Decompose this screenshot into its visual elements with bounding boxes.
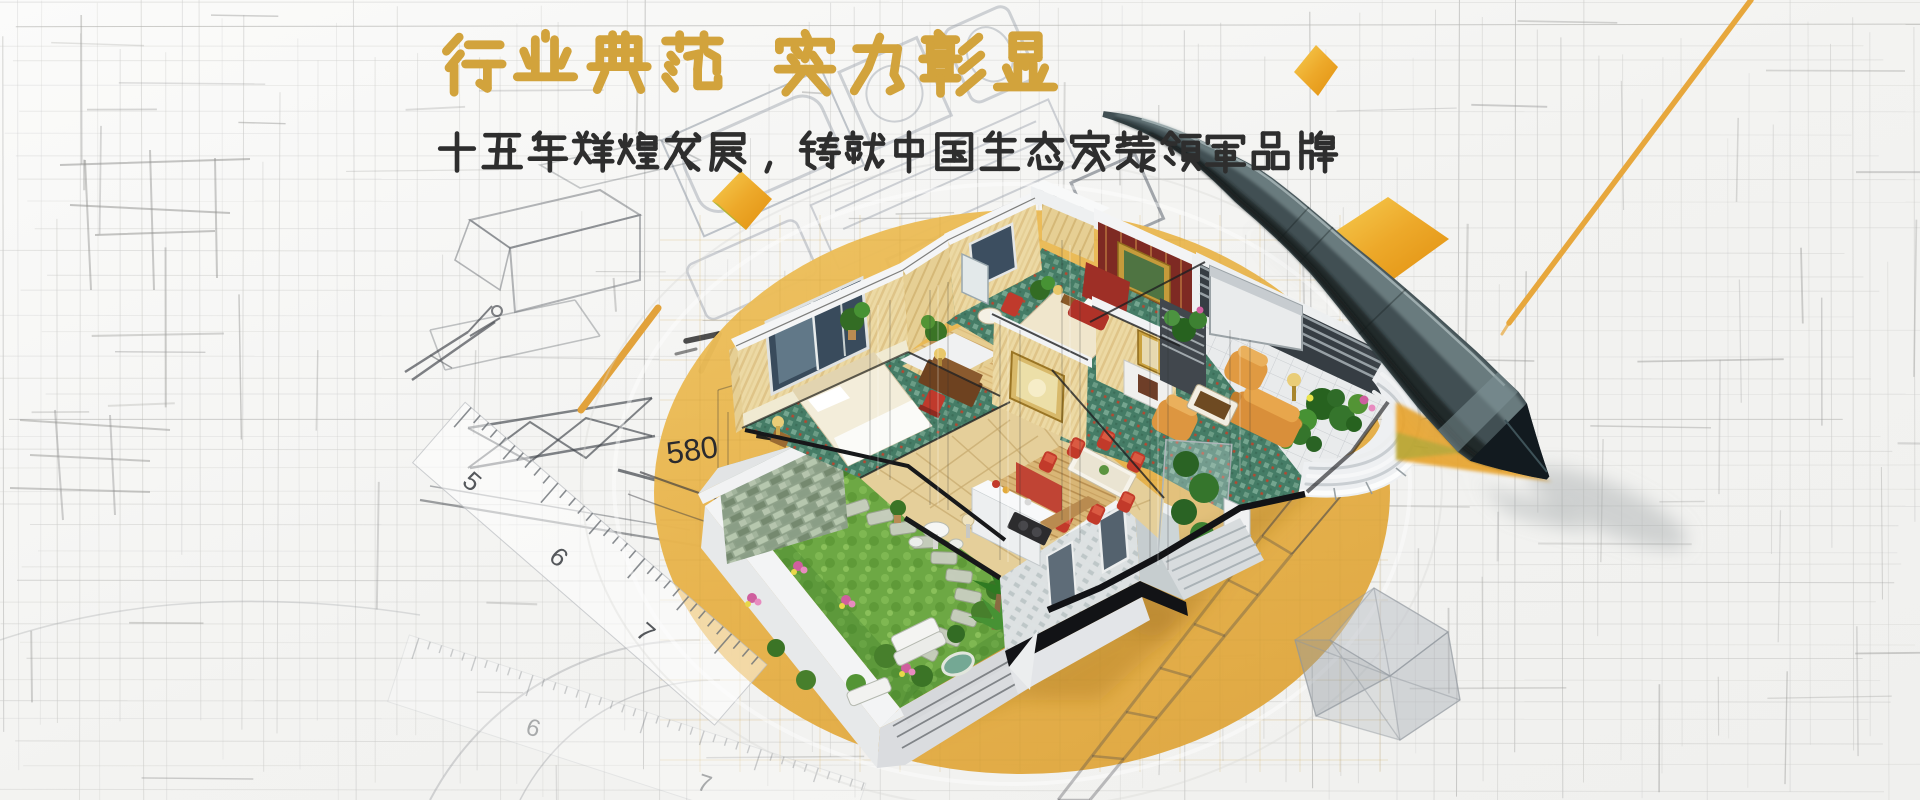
svg-text:580: 580 (664, 429, 720, 471)
